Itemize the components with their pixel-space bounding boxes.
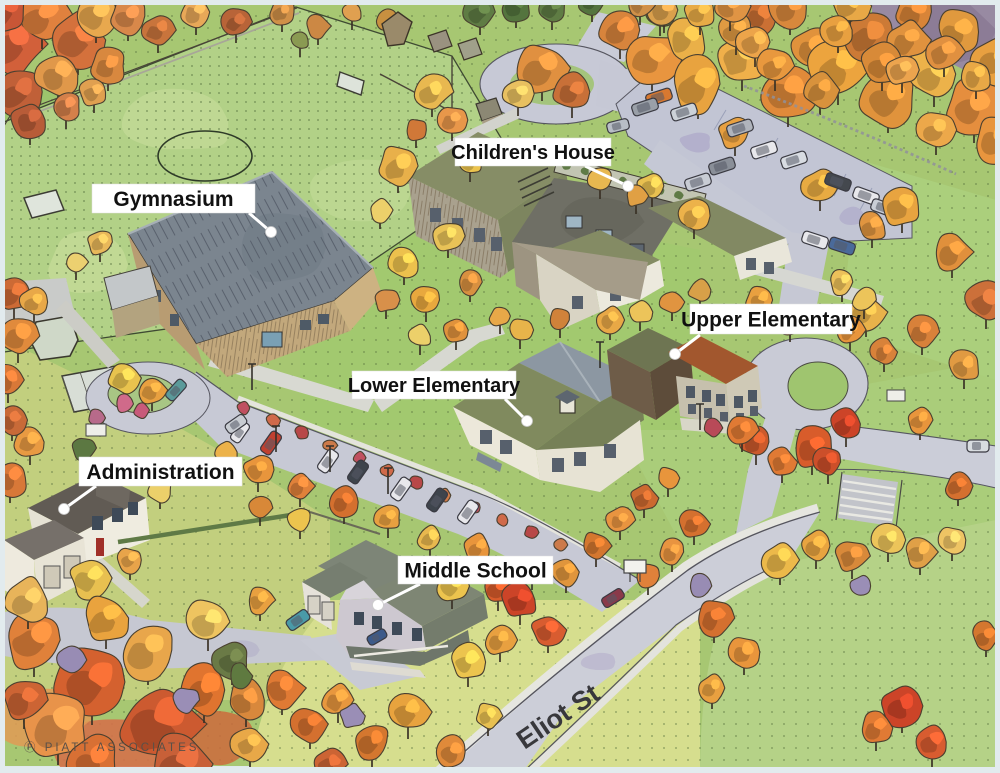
svg-text:Upper Elementary: Upper Elementary	[681, 309, 861, 332]
svg-text:Ⓟ PIATT ASSOCIATES: Ⓟ PIATT ASSOCIATES	[24, 741, 199, 754]
svg-text:Children's House: Children's House	[451, 142, 615, 164]
svg-text:Lower Elementary: Lower Elementary	[348, 375, 521, 397]
svg-text:Gymnasium: Gymnasium	[113, 188, 233, 211]
svg-text:Middle School: Middle School	[404, 560, 546, 583]
svg-text:Administration: Administration	[86, 461, 234, 484]
